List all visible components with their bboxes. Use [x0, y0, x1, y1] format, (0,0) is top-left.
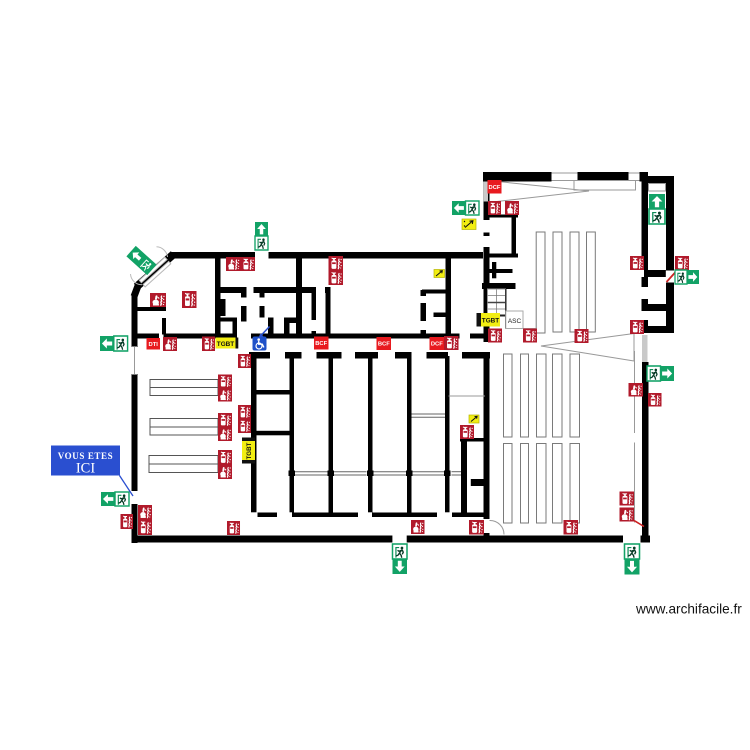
svg-text:DCF: DCF — [489, 185, 501, 191]
svg-text:ASC: ASC — [508, 318, 522, 325]
svg-text:TGBT: TGBT — [246, 442, 253, 459]
svg-text:TGBT: TGBT — [217, 341, 234, 348]
svg-text:DCF: DCF — [431, 342, 443, 348]
svg-text:BCF: BCF — [315, 341, 327, 347]
svg-text:BCF: BCF — [378, 342, 390, 348]
svg-text:www.archifacile.fr: www.archifacile.fr — [635, 602, 742, 617]
svg-text:DTI: DTI — [149, 342, 159, 348]
svg-text:VOUS ETES: VOUS ETES — [58, 451, 114, 461]
svg-text:TGBT: TGBT — [482, 318, 499, 325]
svg-text:ICI: ICI — [76, 461, 96, 477]
